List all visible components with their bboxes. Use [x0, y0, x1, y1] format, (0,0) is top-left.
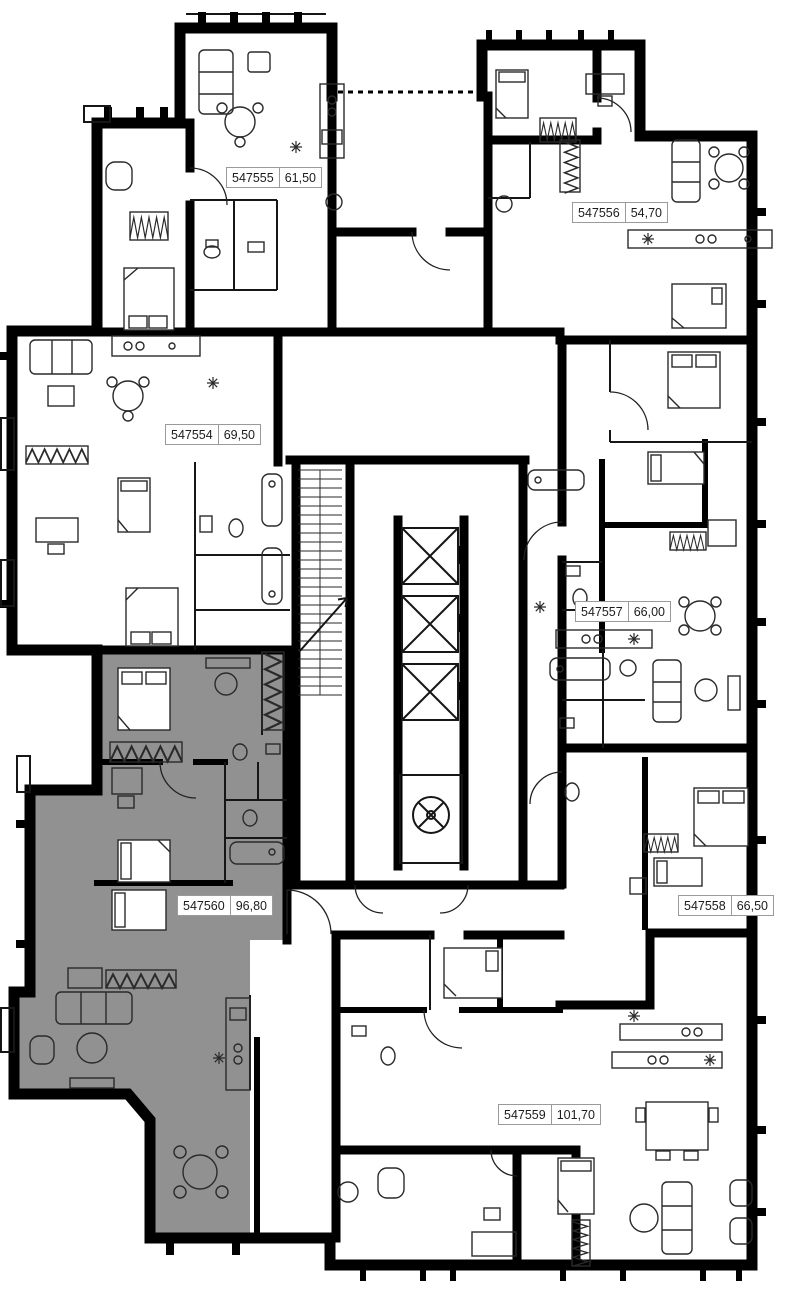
unit-id: 547556	[573, 203, 625, 222]
unit-id: 547558	[679, 896, 731, 915]
stair-core	[298, 470, 347, 695]
unit-area: 66,00	[628, 602, 670, 621]
floor-plan: 547555 61,50 547556 54,70 547554 69,50 5…	[0, 0, 800, 1291]
unit-label-547560[interactable]: 547560 96,80	[177, 895, 273, 916]
unit-label-547558[interactable]: 547558 66,50	[678, 895, 774, 916]
unit-id: 547559	[499, 1105, 551, 1124]
unit-area: 101,70	[551, 1105, 600, 1124]
unit-547556-furniture	[496, 70, 772, 328]
unit-area: 61,50	[279, 168, 321, 187]
unit-label-547554[interactable]: 547554 69,50	[165, 424, 261, 445]
unit-547554-furniture	[26, 336, 282, 646]
unit-area: 54,70	[625, 203, 667, 222]
unit-label-547557[interactable]: 547557 66,00	[575, 601, 671, 622]
unit-label-547556[interactable]: 547556 54,70	[572, 202, 668, 223]
elevator-shafts	[400, 528, 467, 863]
unit-area: 69,50	[218, 425, 260, 444]
unit-547555-furniture	[106, 50, 344, 330]
unit-area: 66,50	[731, 896, 773, 915]
unit-547558-furniture	[550, 658, 748, 894]
unit-label-547559[interactable]: 547559 101,70	[498, 1104, 601, 1125]
unit-area: 96,80	[230, 896, 272, 915]
unit-id: 547555	[227, 168, 279, 187]
floor-plan-svg	[0, 0, 800, 1291]
unit-id: 547557	[576, 602, 628, 621]
unit-id: 547560	[178, 896, 230, 915]
unit-label-547555[interactable]: 547555 61,50	[226, 167, 322, 188]
unit-id: 547554	[166, 425, 218, 444]
